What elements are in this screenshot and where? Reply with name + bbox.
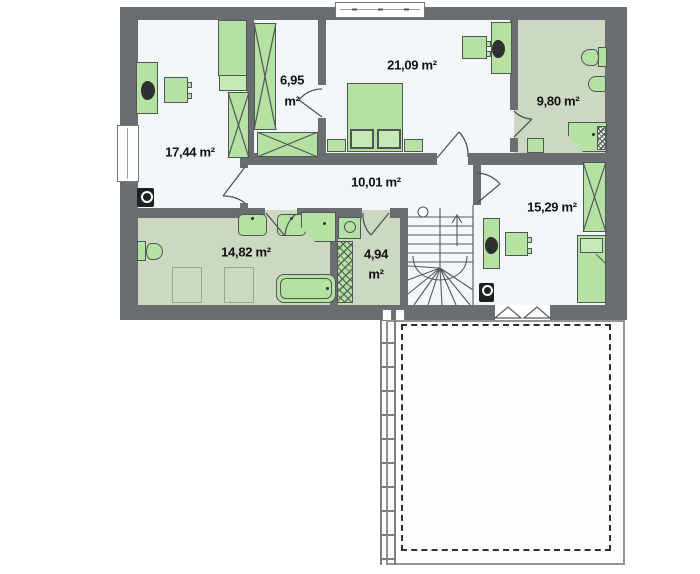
- wardrobe-x: [257, 132, 318, 157]
- wall-closet-right-b: [318, 118, 326, 153]
- side-table-tab: [187, 93, 192, 99]
- window-top-line: [340, 9, 420, 10]
- bed-pillow: [350, 129, 374, 149]
- floor-zone: [172, 267, 202, 303]
- wardrobe-x: [254, 23, 276, 130]
- ladder-icon: [380, 320, 396, 565]
- shower-drain: [592, 133, 595, 136]
- bed-pillow: [377, 129, 401, 149]
- room-label-4-94-line2: m²: [368, 267, 383, 282]
- wall-bottom: [120, 305, 627, 320]
- bed-pillow: [580, 238, 603, 253]
- window-left: [117, 125, 139, 182]
- sink: [588, 76, 606, 92]
- radiator-ring: [482, 285, 493, 296]
- side-table-tab: [527, 237, 532, 243]
- toilet-bowl: [146, 243, 163, 260]
- bathtub-drain: [326, 287, 329, 290]
- sink-tap: [251, 217, 254, 220]
- cabinet-hatched: [337, 241, 353, 303]
- bathtub-inner: [280, 278, 332, 299]
- room-label-15-29: 15,29 m²: [527, 200, 577, 215]
- cabinet: [527, 138, 544, 153]
- toilet-bowl: [581, 49, 599, 66]
- toilet-tank: [137, 241, 146, 261]
- nightstand: [404, 139, 423, 152]
- room-label-17-44: 17,44 m²: [165, 145, 215, 160]
- shower-drain: [323, 222, 326, 225]
- wall-right: [605, 7, 627, 320]
- wall-utility-stairs: [400, 208, 408, 305]
- side-table-tab: [187, 82, 192, 88]
- window-top: [335, 2, 425, 18]
- room-label-4-94-line1: 4,94: [364, 247, 388, 262]
- room-label-21-09: 21,09 m²: [387, 58, 437, 73]
- wardrobe-shelf: [219, 75, 247, 91]
- side-table: [505, 232, 528, 256]
- side-table-tab: [486, 41, 491, 47]
- room-label-9-80: 9,80 m²: [537, 94, 580, 109]
- wall-hall-room-right: [473, 153, 481, 205]
- room-label-6-95-line1: 6,95: [280, 73, 304, 88]
- wardrobe-x: [583, 162, 606, 232]
- nightstand: [327, 139, 346, 152]
- side-table-tab: [527, 248, 532, 254]
- terrace-dashed-outline: [401, 324, 611, 551]
- wall-closet-right-a: [318, 20, 326, 85]
- side-table-tab: [486, 51, 491, 57]
- side-table: [164, 77, 188, 103]
- wardrobe-x: [228, 92, 249, 158]
- room-label-14-82: 14,82 m²: [221, 245, 271, 260]
- floor-plan: 17,44 m² 6,95 m² 21,09 m² 9,80 m² 10,01 …: [0, 0, 700, 574]
- floor-zone: [224, 267, 254, 303]
- flue-ring: [141, 191, 153, 203]
- room-label-6-95-line2: m²: [284, 94, 299, 109]
- washing-machine-drum: [344, 221, 356, 233]
- window-left-line: [127, 128, 128, 179]
- terrace-door-opening: [495, 305, 550, 320]
- wall-bath-top-b: [510, 138, 518, 152]
- side-table: [462, 36, 487, 59]
- radiator-icon: [597, 126, 606, 150]
- room-label-10-01: 10,01 m²: [351, 175, 401, 190]
- wardrobe: [218, 20, 247, 76]
- toilet-tank: [598, 47, 607, 67]
- sink-tap: [290, 217, 293, 220]
